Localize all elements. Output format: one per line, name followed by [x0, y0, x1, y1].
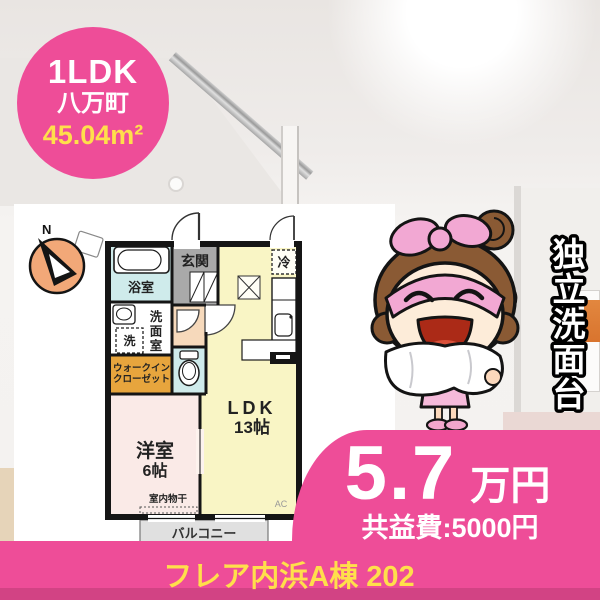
label-western-size: 6帖: [143, 461, 168, 480]
bathtub-icon: [114, 247, 169, 273]
rent-row: 5.7 万円: [305, 436, 590, 512]
label-drying: 室内物干: [149, 493, 188, 505]
toilet-icon: [179, 351, 199, 386]
mascot-character-illustration: [370, 200, 520, 435]
sink-icon: [113, 305, 135, 324]
property-summary-badge: 1LDK 八万町 45.04m²: [17, 27, 169, 179]
corner-window-arc: [270, 216, 294, 248]
feature-char-2: 立: [553, 271, 586, 308]
label-wic-2: クローゼット: [113, 373, 170, 385]
shoe-cabinet-icon: [190, 272, 218, 302]
window-frame-post: [281, 126, 299, 206]
label-genkan: 玄関: [181, 253, 209, 269]
town-name: 八万町: [57, 91, 129, 117]
floor-area: 45.04m²: [43, 121, 144, 151]
label-washer: 洗: [123, 333, 135, 348]
compass-icon: N: [30, 222, 103, 293]
rent-amount: 5.7: [345, 436, 457, 512]
label-washroom-2: 面: [150, 325, 163, 339]
property-name: フレア内浜A棟 202: [0, 553, 578, 595]
label-balcony: バルコニー: [172, 526, 237, 541]
layout-type: 1LDK: [48, 55, 138, 88]
ceiling-sensor: [168, 176, 184, 192]
label-wic-1: ウォークイン: [113, 363, 170, 374]
floor-hatch-icon: [238, 276, 260, 299]
front-door: [172, 213, 200, 249]
common-fee: 共益費:5000円: [310, 514, 590, 544]
label-western: 洋室: [136, 439, 174, 462]
feature-vertical-text: 独 立 洗 面 台: [543, 228, 595, 428]
label-washroom-1: 洗: [150, 309, 163, 324]
label-ac: AC: [275, 499, 288, 509]
compass-n-label: N: [42, 222, 51, 237]
label-washroom-3: 室: [150, 338, 163, 353]
feature-char-1: 独: [553, 236, 586, 273]
rent-unit: 万円: [470, 466, 550, 506]
label-ldk: LDK: [228, 398, 277, 418]
label-bath: 浴室: [128, 280, 154, 295]
feature-char-5: 台: [553, 376, 586, 413]
feature-char-3: 洗: [553, 306, 586, 343]
listing-ad-image: N: [0, 0, 600, 600]
label-ldk-size: 13帖: [234, 417, 270, 437]
label-fridge: 冷: [277, 255, 290, 270]
feature-char-4: 面: [553, 341, 586, 378]
left-floor-sliver: [0, 468, 14, 548]
